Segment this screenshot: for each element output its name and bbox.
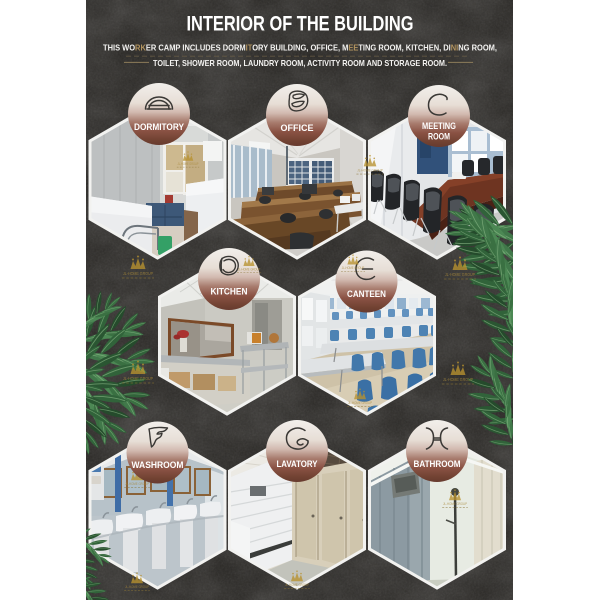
svg-text:TOILET, SHOWER ROOM, LAUNDRY R: TOILET, SHOWER ROOM, LAUNDRY ROOM, ACTIV… <box>153 58 447 68</box>
svg-text:LAVATORY: LAVATORY <box>277 459 318 469</box>
svg-text:THIS WORKER CAMP INCLUDES DORM: THIS WORKER CAMP INCLUDES DORMITORY BUIL… <box>103 43 497 53</box>
svg-text:ROOM: ROOM <box>428 132 450 142</box>
svg-text:WASHROOM: WASHROOM <box>132 460 184 470</box>
svg-text:OFFICE: OFFICE <box>281 123 314 133</box>
svg-text:BATHROOM: BATHROOM <box>414 459 461 469</box>
svg-text:DORMITORY: DORMITORY <box>134 122 184 132</box>
svg-text:CANTEEN: CANTEEN <box>347 289 386 299</box>
svg-text:MEETING: MEETING <box>422 121 456 131</box>
svg-text:KITCHEN: KITCHEN <box>211 287 248 297</box>
svg-text:INTERIOR OF THE BUILDING: INTERIOR OF THE BUILDING <box>187 13 414 36</box>
